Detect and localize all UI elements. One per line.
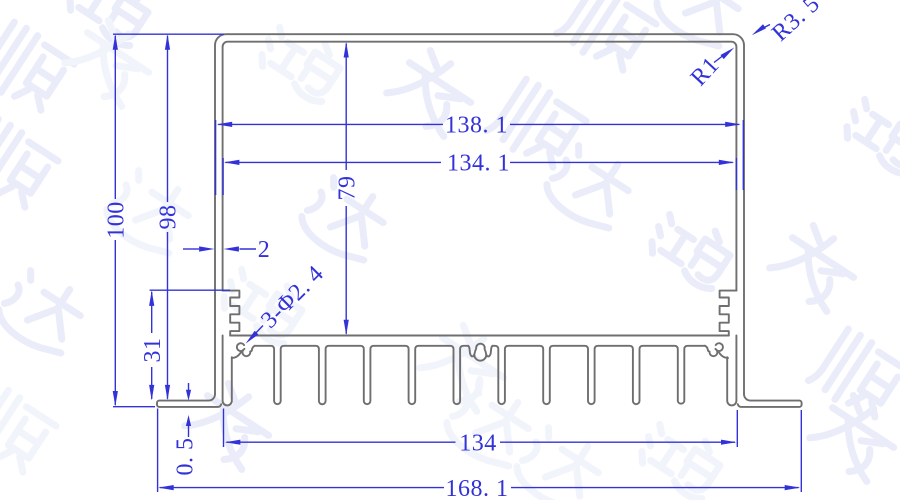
svg-text:134: 134 [459,430,497,456]
svg-text:79: 79 [334,176,360,201]
svg-text:31: 31 [140,338,166,363]
svg-text:100: 100 [104,201,130,239]
svg-text:168. 1: 168. 1 [446,476,509,500]
svg-text:2: 2 [258,237,271,263]
svg-text:134. 1: 134. 1 [447,151,510,177]
svg-text:98: 98 [156,205,182,230]
svg-text:0. 5: 0. 5 [173,438,199,476]
svg-text:138. 1: 138. 1 [445,113,508,139]
